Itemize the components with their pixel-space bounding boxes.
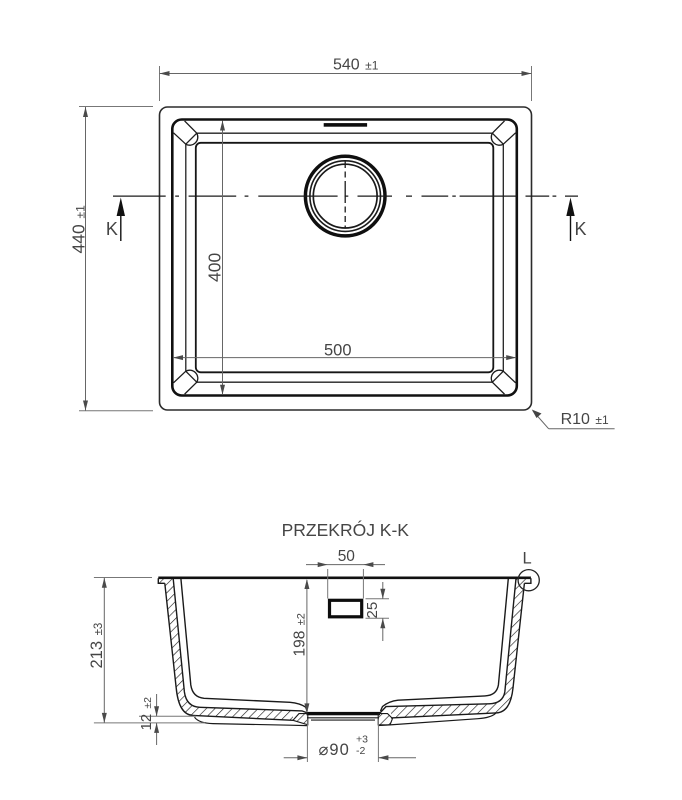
svg-text:198 ±2: 198 ±2 xyxy=(292,613,309,656)
svg-text:12 ±2: 12 ±2 xyxy=(138,697,155,731)
svg-text:25: 25 xyxy=(364,602,381,619)
svg-text:K: K xyxy=(106,219,118,239)
svg-text:500: 500 xyxy=(324,342,352,360)
svg-text:213 ±3: 213 ±3 xyxy=(88,623,106,669)
svg-text:440 ±1: 440 ±1 xyxy=(69,205,89,254)
svg-text:K: K xyxy=(575,219,587,239)
svg-text:R10 ±1: R10 ±1 xyxy=(561,411,609,428)
svg-text:⌀90: ⌀90 xyxy=(319,741,350,759)
svg-text:PRZEKRÓJ K-K: PRZEKRÓJ K-K xyxy=(282,519,410,540)
svg-text:-2: -2 xyxy=(356,745,365,757)
svg-text:+3: +3 xyxy=(356,734,368,746)
svg-text:L: L xyxy=(523,550,532,568)
svg-text:50: 50 xyxy=(338,548,356,565)
svg-text:540 ±1: 540 ±1 xyxy=(333,57,379,74)
svg-text:400: 400 xyxy=(204,253,224,282)
